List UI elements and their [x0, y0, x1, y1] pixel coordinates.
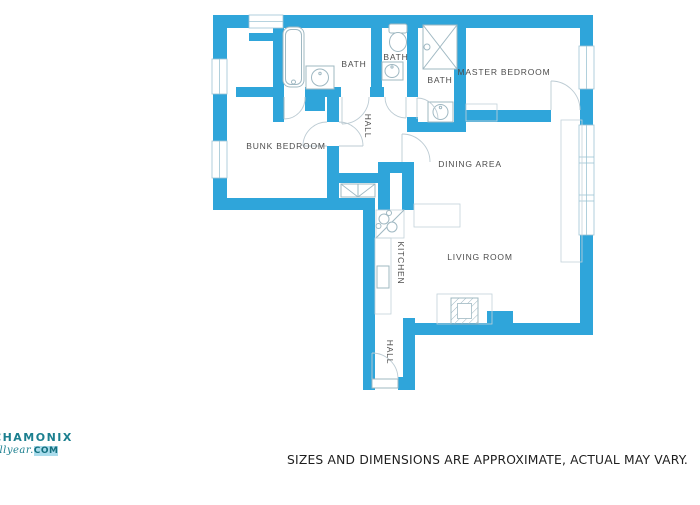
bathtub-icon — [283, 27, 304, 87]
window-icon — [212, 59, 227, 94]
disclaimer-text: SIZES AND DIMENSIONS ARE APPROXIMATE, AC… — [287, 453, 688, 467]
shower-icon — [423, 25, 457, 69]
room-label-living-room: LIVING ROOM — [447, 252, 512, 262]
room-label-hall-upper: HALL — [363, 114, 373, 138]
door-bath-2 — [385, 97, 406, 118]
floor-plan-svg: BATH BATH BATH MASTER BEDROOM BUNK BEDRO… — [0, 0, 700, 500]
logo-domain-tld: COM — [34, 446, 59, 456]
floor-plan: BATH BATH BATH MASTER BEDROOM BUNK BEDRO… — [0, 0, 700, 500]
window-icon — [579, 125, 594, 235]
room-label-dining-area: DINING AREA — [438, 159, 502, 169]
stove-icon — [376, 210, 404, 238]
door-hall-dining — [402, 134, 430, 162]
room-label-kitchen: KITCHEN — [396, 242, 406, 285]
room-label-bath-3: BATH — [427, 75, 452, 85]
window-icon — [579, 46, 594, 89]
logo-domain-name: allyear. — [0, 445, 34, 456]
fireplace-icon — [437, 294, 492, 324]
door-bunk-closet — [284, 97, 305, 119]
room-label-master-bedroom: MASTER BEDROOM — [458, 67, 551, 77]
closet-door — [341, 184, 375, 197]
logo-domain-text: allyear.COM — [0, 445, 73, 457]
room-label-bunk-bedroom: BUNK BEDROOM — [246, 141, 326, 151]
sink-icon — [306, 66, 334, 89]
sink-icon — [428, 102, 453, 122]
logo-brand-text: CHAMONIX — [0, 432, 73, 445]
kitchen-sink-icon — [377, 266, 389, 288]
toilet-icon — [389, 24, 407, 52]
door-master-bedroom — [551, 81, 580, 110]
sink-icon — [382, 62, 403, 80]
window-icon — [249, 15, 283, 28]
room-label-bath-2: BATH — [383, 52, 408, 62]
room-label-hall-lower: HALL — [385, 340, 395, 364]
room-label-bath-1: BATH — [341, 59, 366, 69]
window-icon — [212, 141, 227, 178]
logo: CHAMONIX allyear.COM — [0, 432, 73, 456]
